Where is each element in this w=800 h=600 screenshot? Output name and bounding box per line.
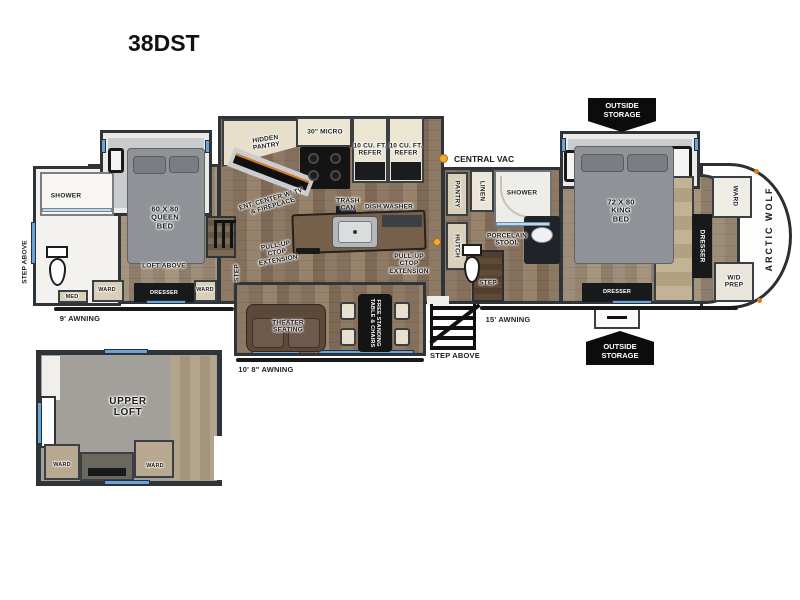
king-pillow-right xyxy=(627,154,668,172)
awning-rear-bar xyxy=(54,307,234,311)
burner-2 xyxy=(330,153,341,164)
loft-above-label: LOFT ABOVE xyxy=(142,262,186,269)
refrigerator-left-label: 10 CU. FT. REFER xyxy=(353,143,386,158)
front-dresser-bottom-label: DRESSER xyxy=(603,289,631,295)
vac-inlet-dot xyxy=(433,238,441,246)
front-ward-label: WARD xyxy=(731,186,738,207)
loft-wall-white-left xyxy=(42,356,60,400)
mid-shower-glass xyxy=(496,222,550,226)
queen-slide-accent-right xyxy=(205,140,210,153)
loft-ward-left-label: WARD xyxy=(53,462,71,468)
loft-accent-top xyxy=(104,349,148,354)
queen-slide-window-left xyxy=(108,148,124,173)
rear-dresser-label: DRESSER xyxy=(150,290,178,296)
front-window-bottom xyxy=(612,300,652,304)
king-pillow-left xyxy=(581,154,624,172)
refrigerator-left-base xyxy=(355,162,385,180)
upper-loft-label: UPPER LOFT xyxy=(109,396,146,418)
dinette-chair-4 xyxy=(394,328,410,346)
floorplan-model-title: 38DST xyxy=(128,30,200,57)
awning-rear-label: 9' AWNING xyxy=(60,315,100,323)
loft-stairwell-opening xyxy=(88,468,126,476)
burner-1 xyxy=(308,153,319,164)
clearance-light-bottom xyxy=(757,298,762,303)
central-vac-dot xyxy=(439,154,448,163)
rear-shower-glass xyxy=(42,208,112,212)
outside-storage-badge-bottom: OUTSIDE STORAGE xyxy=(586,331,654,365)
ctop-right-label: PULL-UP CTOP EXTENSION xyxy=(389,253,428,275)
loft-window-glass xyxy=(37,402,42,444)
porcelain-stool-label: PORCELAIN STOOL xyxy=(487,233,527,248)
mid-hutch-label: HUTCH xyxy=(453,234,460,258)
loft-wood-floor xyxy=(170,356,216,480)
rear-step-label: STEP xyxy=(233,264,240,282)
rear-toilet-tank xyxy=(46,246,68,258)
king-slide-accent-right xyxy=(694,138,699,151)
brand-arctic-wolf: ARCTIC WOLF xyxy=(764,187,774,272)
refrigerator-right-label: 10 CU. FT. REFER xyxy=(389,143,422,158)
burner-3 xyxy=(308,170,319,181)
queen-slide-accent-left xyxy=(101,139,106,153)
rear-shower-label: SHOWER xyxy=(51,192,81,199)
awning-front-label: 15' AWNING xyxy=(486,316,531,324)
loft-stairwell xyxy=(80,452,134,481)
rear-stair-railing xyxy=(214,220,236,248)
dishwasher-label: DISH WASHER xyxy=(365,203,413,210)
burner-4 xyxy=(330,170,341,181)
awning-front-bar xyxy=(480,306,738,310)
rear-window-bottom xyxy=(146,300,186,304)
queen-pillow-left xyxy=(133,156,166,174)
rear-med-label: MED xyxy=(66,294,79,300)
mid-step-label: STEP xyxy=(479,279,497,286)
awning-mid-label: 10' 8" AWNING xyxy=(238,366,293,374)
loft-ward-right xyxy=(134,440,174,478)
queen-pillow-right xyxy=(169,156,199,173)
step-above-rear-label: STEP ABOVE xyxy=(21,240,28,284)
theater-seating-label: THEATER SEATING xyxy=(272,320,304,335)
loft-ward-right-label: WARD xyxy=(146,463,164,469)
loft-door-gap xyxy=(214,436,222,480)
rear-ward-right-label: WARD xyxy=(196,287,214,293)
awning-mid-bar xyxy=(236,358,424,362)
queen-bed-label: 60 X 80 QUEEN BED xyxy=(151,205,179,230)
toilet-tank xyxy=(462,244,482,256)
floorplan-canvas: 38DST ARCTIC WOLF SHOWER MED STEP ABOVE … xyxy=(0,0,800,600)
trash-can-label: TRASH CAN xyxy=(336,198,359,213)
microwave-label: 30" MICRO xyxy=(307,128,343,135)
refrigerator-right-base xyxy=(391,162,421,180)
loft-accent-bottom xyxy=(104,480,150,485)
wd-prep-label: W/D PREP xyxy=(725,275,744,290)
loft-window-frame xyxy=(40,396,56,448)
dinette-chair-2 xyxy=(340,328,356,346)
king-bed-label: 72 X 80 KING BED xyxy=(607,198,634,223)
central-vac-label: CENTRAL VAC xyxy=(454,154,514,164)
outside-storage-badge-top: OUTSIDE STORAGE xyxy=(588,98,656,132)
sink-drain xyxy=(353,230,357,234)
rear-ward-left-label: WARD xyxy=(98,287,116,293)
clearance-light-top xyxy=(754,169,759,174)
island-dishwasher-panel xyxy=(382,215,422,227)
king-slide-accent-left xyxy=(561,138,566,152)
storage-hatch-handle xyxy=(607,316,627,319)
vanity-sink xyxy=(531,227,553,243)
step-above-entry-label: STEP ABOVE xyxy=(430,352,480,360)
dinette-chair-1 xyxy=(340,302,356,320)
island-stool-bar xyxy=(296,248,320,254)
mid-pantry-label: PANTRY xyxy=(453,180,460,207)
dinette-chair-3 xyxy=(394,302,410,320)
mid-shower-label: SHOWER xyxy=(507,189,537,196)
front-dresser-side-label: DRESSER xyxy=(698,230,705,263)
rear-bath-window xyxy=(31,222,36,264)
dinette-label: FREE STANDING TABLE & CHAIRS xyxy=(369,299,381,348)
linen-label: LINEN xyxy=(478,181,485,202)
